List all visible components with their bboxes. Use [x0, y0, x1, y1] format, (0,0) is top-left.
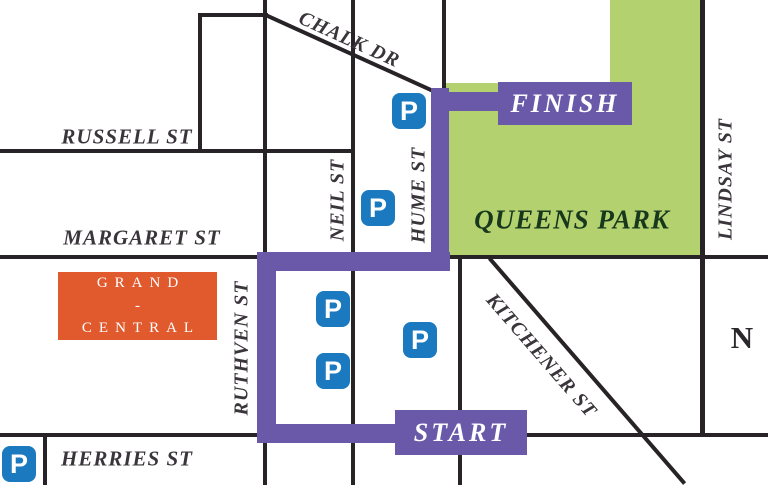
herries-st-label: HERRIES ST	[61, 447, 193, 472]
neil-st-line	[351, 0, 355, 485]
ruthven-st-label: RUTHVEN ST	[231, 280, 254, 415]
hume-st-label: HUME ST	[408, 147, 431, 243]
queens-park-label: QUEENS PARK	[474, 205, 670, 236]
route-segment-hume-st	[431, 88, 449, 271]
grand-central-label-line1: GRAND	[90, 272, 185, 295]
queens-park-area-north	[610, 0, 703, 85]
hume-st-line-north	[442, 0, 446, 92]
parking-icon: P	[392, 93, 426, 129]
grand-central-label-line2: -	[128, 295, 147, 318]
russell-st-line	[0, 149, 353, 153]
russell-st-stub-line	[198, 13, 202, 151]
grand-central-label-line3: CENTRAL	[75, 317, 200, 340]
route-segment-start-approach	[257, 424, 400, 443]
ruthven-st-line-south	[263, 443, 267, 485]
walking-route-map: CHALK DR RUSSELL ST MARGARET ST HERRIES …	[0, 0, 768, 485]
neil-st-label: NEIL ST	[327, 159, 350, 241]
ruthven-st-line-north	[263, 0, 267, 257]
parking-icon: P	[316, 353, 350, 389]
chalk-dr-line-west	[198, 13, 268, 17]
chalk-dr-label: CHALK DR	[295, 7, 403, 73]
grand-central-building: GRAND - CENTRAL	[58, 272, 217, 340]
parking-icon: P	[361, 190, 395, 226]
kitchener-st-label: KITCHENER ST	[481, 289, 601, 423]
route-segment-ruthven-st	[257, 252, 276, 443]
start-badge: START	[395, 410, 527, 455]
lindsay-st-label: LINDSAY ST	[715, 118, 738, 240]
parking-icon: P	[403, 322, 437, 358]
margaret-st-label: MARGARET ST	[63, 226, 220, 251]
finish-badge: FINISH	[498, 82, 632, 125]
parking-icon: P	[316, 291, 350, 327]
lindsay-st-line	[700, 0, 705, 437]
north-compass-label: N	[731, 320, 753, 356]
russell-st-label: RUSSELL ST	[61, 125, 192, 150]
parking-lot-boundary-line	[43, 435, 47, 485]
parking-icon: P	[2, 446, 36, 482]
route-segment-margaret-st	[257, 252, 450, 271]
